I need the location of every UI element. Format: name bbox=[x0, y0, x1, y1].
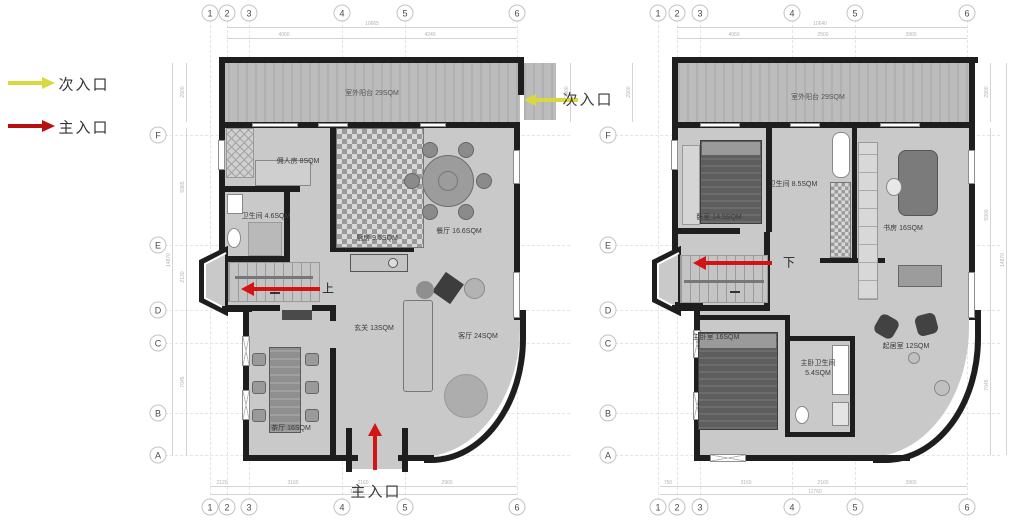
sideboard bbox=[898, 265, 942, 287]
dim-line bbox=[855, 38, 967, 39]
dim-label: 750 bbox=[664, 480, 672, 486]
dining-chair bbox=[476, 173, 492, 189]
dim-line bbox=[632, 63, 633, 122]
wall bbox=[678, 228, 740, 234]
dim-line bbox=[227, 38, 342, 39]
room-label: 卧室 14.5SQM bbox=[696, 212, 742, 222]
dim-label: 4060 bbox=[278, 32, 289, 38]
dim-label: 4060 bbox=[728, 32, 739, 38]
room-label: 起居室 12SQM bbox=[883, 341, 930, 351]
grid-col-bubble: 1 bbox=[650, 5, 667, 22]
tea-chair bbox=[252, 381, 266, 394]
wall bbox=[785, 315, 790, 435]
dim-label: 3960 bbox=[905, 32, 916, 38]
dim-label: 3160 bbox=[287, 480, 298, 486]
stair-handrail bbox=[684, 280, 764, 283]
wall bbox=[672, 57, 978, 63]
dim-line bbox=[677, 27, 967, 28]
dim-label: 2900 bbox=[984, 86, 990, 97]
window bbox=[242, 336, 250, 366]
wall bbox=[225, 305, 280, 311]
dim-label: 2500 bbox=[817, 32, 828, 38]
main-entrance-label: 主入口 bbox=[350, 481, 401, 502]
window bbox=[790, 123, 820, 127]
dim-line bbox=[660, 486, 967, 487]
room-label: 佣人房 8SQM bbox=[277, 156, 320, 166]
wall bbox=[672, 63, 678, 122]
wall bbox=[785, 432, 855, 437]
dim-label: 4240 bbox=[424, 32, 435, 38]
room-label: 卫生间 8.5SQM bbox=[769, 179, 818, 189]
tea-chair bbox=[252, 353, 266, 366]
tea-chair bbox=[305, 353, 319, 366]
floor-plan-canvas: 次入口 主入口 1 2 3 4 5 6 1 2 3 4 5 6 F E D C … bbox=[0, 0, 1032, 520]
dim-label: 2120 bbox=[216, 480, 227, 486]
room-label: 书房 16SQM bbox=[883, 223, 923, 233]
stair-handrail bbox=[235, 276, 313, 279]
window bbox=[671, 140, 678, 170]
wall bbox=[346, 428, 352, 472]
side-table bbox=[908, 352, 920, 364]
dim-label: 3160 bbox=[740, 480, 751, 486]
grid-col-bubble: 3 bbox=[241, 5, 258, 22]
grid-row-bubble: F bbox=[600, 127, 617, 144]
grid-col-bubble: 2 bbox=[219, 499, 236, 516]
window bbox=[700, 123, 740, 127]
dim-label: 14870 bbox=[166, 253, 172, 267]
dining-chair bbox=[422, 142, 438, 158]
window bbox=[242, 390, 250, 420]
stairs-direction-label: 下 bbox=[783, 254, 795, 271]
dim-label: 7045 bbox=[180, 376, 186, 387]
grid-col-bubble: 2 bbox=[669, 5, 686, 22]
grid-row-bubble: A bbox=[600, 447, 617, 464]
wall bbox=[672, 305, 770, 311]
kitchen-counter bbox=[350, 254, 408, 272]
grid-col-bubble: 1 bbox=[202, 5, 219, 22]
wall bbox=[219, 57, 524, 63]
study-desk bbox=[898, 150, 938, 216]
dim-label: 10665 bbox=[365, 21, 379, 27]
room-label: 厨房 9.5SQM bbox=[356, 233, 398, 243]
dim-line bbox=[172, 63, 173, 455]
grid-col-bubble: 2 bbox=[219, 5, 236, 22]
dim-line bbox=[186, 245, 187, 310]
wall bbox=[969, 57, 975, 122]
dim-label: 2130 bbox=[180, 271, 186, 282]
window bbox=[218, 140, 225, 170]
closet bbox=[226, 128, 254, 178]
stairs-direction-label: 上 bbox=[322, 280, 334, 297]
wall bbox=[518, 57, 524, 95]
wall bbox=[790, 336, 855, 341]
toilet bbox=[795, 406, 809, 424]
stairs-down-arrow-icon bbox=[692, 254, 777, 272]
side-table bbox=[416, 281, 434, 299]
room-label: 茶厅 16SQM bbox=[271, 423, 311, 433]
grid-row-bubble: A bbox=[150, 447, 167, 464]
bathtub bbox=[832, 132, 850, 178]
dim-line bbox=[1006, 63, 1007, 455]
grid-col-bubble: 1 bbox=[650, 499, 667, 516]
legend-secondary-entrance-arrow-icon bbox=[8, 76, 56, 90]
grid-row-bubble: C bbox=[600, 335, 617, 352]
window bbox=[968, 150, 975, 184]
window bbox=[880, 123, 920, 127]
tea-chair bbox=[252, 409, 266, 422]
grid-col-bubble: 6 bbox=[959, 499, 976, 516]
dim-line bbox=[677, 38, 792, 39]
grid-col-bubble: 3 bbox=[241, 499, 258, 516]
dim-line bbox=[186, 310, 187, 455]
room-label: 玄关 13SQM bbox=[354, 323, 394, 333]
dim-label: 14870 bbox=[1000, 253, 1006, 267]
grid-row-bubble: B bbox=[600, 405, 617, 422]
bed-pillows bbox=[702, 142, 760, 155]
bathroom-tile bbox=[830, 182, 851, 258]
shower bbox=[248, 222, 282, 256]
grid-col-bubble: 6 bbox=[509, 499, 526, 516]
grid-col-bubble: 6 bbox=[959, 5, 976, 22]
toilet bbox=[227, 228, 241, 248]
sofa bbox=[403, 300, 433, 392]
dining-chair bbox=[404, 173, 420, 189]
wall bbox=[243, 455, 358, 461]
dining-chair bbox=[458, 204, 474, 220]
grid-col-bubble: 2 bbox=[669, 499, 686, 516]
dining-chair bbox=[458, 142, 474, 158]
grid-col-bubble: 4 bbox=[334, 499, 351, 516]
bathroom-sink bbox=[832, 402, 849, 426]
foyer-cabinet bbox=[282, 310, 312, 320]
stairs-up-arrow-icon bbox=[240, 280, 325, 298]
dim-label: 2900 bbox=[180, 86, 186, 97]
wall bbox=[330, 348, 336, 457]
legend-secondary-entrance-label: 次入口 bbox=[58, 74, 109, 95]
dim-line bbox=[990, 128, 991, 310]
grid-col-bubble: 6 bbox=[509, 5, 526, 22]
grid-col-bubble: 4 bbox=[784, 499, 801, 516]
grid-col-bubble: 5 bbox=[397, 5, 414, 22]
dining-table-center bbox=[438, 171, 458, 191]
dim-label: 5900 bbox=[984, 209, 990, 220]
tea-chair bbox=[305, 409, 319, 422]
dim-line bbox=[186, 128, 187, 245]
grid-col-bubble: 3 bbox=[692, 499, 709, 516]
grid-col-bubble: 3 bbox=[692, 5, 709, 22]
window bbox=[513, 150, 520, 184]
room-label: 室外阳台 29SQM bbox=[791, 92, 845, 102]
window bbox=[420, 123, 446, 127]
dim-line bbox=[227, 27, 517, 28]
tea-table bbox=[269, 347, 301, 433]
wardrobe bbox=[858, 142, 878, 300]
dim-line bbox=[990, 63, 991, 122]
dim-line bbox=[186, 63, 187, 122]
grid-col-bubble: 5 bbox=[847, 5, 864, 22]
grid-row-bubble: C bbox=[150, 335, 167, 352]
grid-row-bubble: D bbox=[600, 302, 617, 319]
grid-col-bubble: 5 bbox=[847, 499, 864, 516]
dining-chair bbox=[422, 204, 438, 220]
grid-row-bubble: B bbox=[150, 405, 167, 422]
secondary-entrance-label: 次入口 bbox=[562, 89, 613, 110]
desk-chair bbox=[886, 178, 902, 196]
grid-row-bubble: E bbox=[150, 237, 167, 254]
wall bbox=[402, 428, 408, 472]
legend-main-entrance-arrow-icon bbox=[8, 119, 56, 133]
grid-row-bubble: F bbox=[150, 127, 167, 144]
dim-label: 2900 bbox=[626, 86, 632, 97]
wall bbox=[284, 192, 290, 260]
main-entrance-arrow-icon bbox=[366, 422, 384, 472]
legend-main-entrance-label: 主入口 bbox=[58, 117, 109, 138]
kitchen-sink bbox=[388, 258, 398, 268]
dim-label: 7045 bbox=[984, 379, 990, 390]
dim-label: 11760 bbox=[808, 489, 822, 495]
dim-label: 2960 bbox=[441, 480, 452, 486]
window bbox=[710, 454, 746, 462]
dim-line bbox=[792, 38, 855, 39]
wall bbox=[694, 315, 790, 320]
tea-chair bbox=[305, 381, 319, 394]
room-label: 客厅 24SQM bbox=[458, 331, 498, 341]
window bbox=[252, 123, 298, 127]
room-label: 餐厅 16.6SQM bbox=[436, 226, 482, 236]
side-table bbox=[464, 278, 485, 299]
wall bbox=[219, 63, 225, 122]
grid-row-bubble: E bbox=[600, 237, 617, 254]
stair-break-mark bbox=[730, 291, 740, 293]
dim-line bbox=[342, 38, 517, 39]
wall bbox=[330, 305, 336, 321]
dim-label: 2160 bbox=[817, 480, 828, 486]
grid-col-bubble: 4 bbox=[334, 5, 351, 22]
dim-line bbox=[990, 310, 991, 455]
grid-col-bubble: 1 bbox=[202, 499, 219, 516]
wall bbox=[852, 128, 857, 262]
side-table bbox=[934, 380, 950, 396]
window bbox=[318, 123, 348, 127]
dim-label: 5985 bbox=[180, 181, 186, 192]
room-label: 卫生间 4.6SQM bbox=[242, 211, 291, 221]
wall bbox=[850, 336, 855, 436]
dim-label: 10640 bbox=[813, 21, 827, 27]
room-label: 主卧室 16SQM bbox=[693, 332, 740, 342]
grid-row-bubble: D bbox=[150, 302, 167, 319]
grid-col-bubble: 4 bbox=[784, 5, 801, 22]
wall bbox=[243, 305, 249, 461]
room-label: 主卧卫生间 5.4SQM bbox=[797, 359, 839, 379]
rug bbox=[444, 374, 488, 418]
bathroom-sink bbox=[227, 194, 243, 214]
dim-label: 3960 bbox=[905, 480, 916, 486]
room-label: 室外阳台 29SQM bbox=[345, 88, 399, 98]
